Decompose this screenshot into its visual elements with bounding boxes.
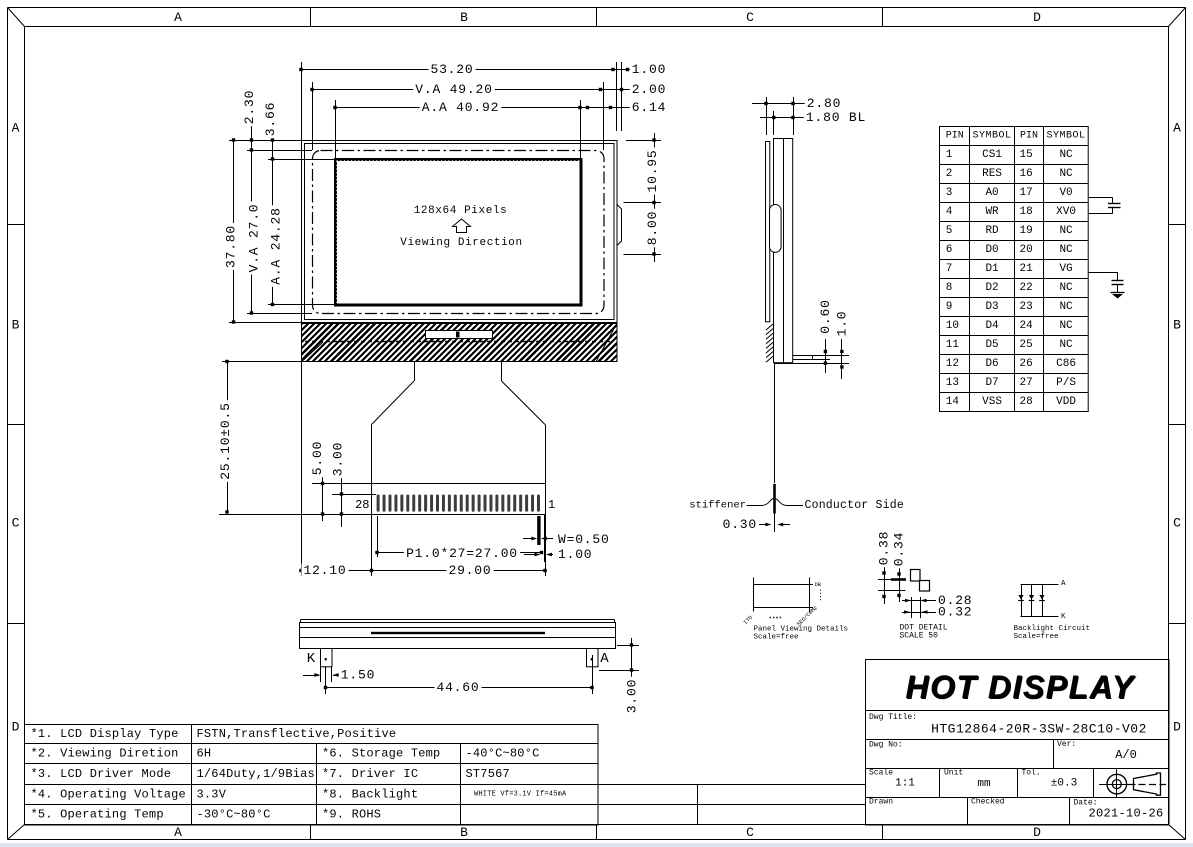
svg-text:CS1: CS1 bbox=[982, 149, 1002, 161]
svg-text:D: D bbox=[1033, 825, 1041, 840]
svg-text:1: 1 bbox=[946, 149, 953, 161]
svg-text:25.10±0.5: 25.10±0.5 bbox=[218, 402, 233, 479]
svg-text:12: 12 bbox=[946, 358, 959, 370]
svg-text:6.14: 6.14 bbox=[632, 100, 666, 115]
svg-text:NC: NC bbox=[1059, 149, 1073, 161]
svg-text:25: 25 bbox=[1020, 339, 1033, 351]
svg-text:*4. Operating Voltage: *4. Operating Voltage bbox=[31, 788, 186, 802]
svg-text:8.00: 8.00 bbox=[645, 211, 660, 245]
svg-text:Panel Viewing Details: Panel Viewing Details bbox=[754, 626, 849, 634]
svg-text:3.00: 3.00 bbox=[625, 679, 640, 713]
svg-text:1.0: 1.0 bbox=[834, 311, 849, 337]
svg-text:B: B bbox=[1173, 318, 1181, 333]
svg-text:C86: C86 bbox=[1056, 358, 1076, 370]
svg-text:0.60: 0.60 bbox=[818, 299, 833, 333]
svg-text:SEG/C0M: SEG/C0M bbox=[795, 606, 816, 627]
svg-text:HOT DISPLAY: HOT DISPLAY bbox=[905, 669, 1135, 705]
svg-text:mm: mm bbox=[977, 778, 991, 790]
svg-text:1.00: 1.00 bbox=[632, 62, 666, 77]
svg-text:Scale=free: Scale=free bbox=[1014, 633, 1059, 641]
svg-text:Backlight Circuit: Backlight Circuit bbox=[1014, 625, 1091, 633]
svg-text:0.38: 0.38 bbox=[877, 531, 892, 565]
svg-text:28: 28 bbox=[355, 498, 369, 512]
svg-text:*5. Operating Temp: *5. Operating Temp bbox=[31, 808, 164, 822]
svg-text:14: 14 bbox=[946, 396, 960, 408]
svg-text:2: 2 bbox=[946, 168, 953, 180]
svg-text:WR: WR bbox=[985, 206, 999, 218]
svg-text:27: 27 bbox=[1020, 377, 1033, 389]
svg-text:*7. Driver IC: *7. Driver IC bbox=[322, 767, 418, 781]
svg-text:128x64 Pixels: 128x64 Pixels bbox=[414, 205, 508, 217]
svg-text:Dwg Title:: Dwg Title: bbox=[869, 713, 917, 722]
svg-text:Scale: Scale bbox=[869, 769, 893, 778]
svg-text:RES: RES bbox=[982, 168, 1002, 180]
svg-text:D5: D5 bbox=[985, 339, 998, 351]
svg-text:29.00: 29.00 bbox=[448, 563, 491, 578]
svg-text:VDD: VDD bbox=[1056, 396, 1076, 408]
svg-text:10.95: 10.95 bbox=[645, 149, 660, 192]
svg-text:C: C bbox=[12, 516, 20, 531]
svg-text:PIN: PIN bbox=[1020, 131, 1038, 142]
svg-text:B: B bbox=[460, 825, 468, 840]
svg-text:NC: NC bbox=[1059, 282, 1073, 294]
svg-text:22: 22 bbox=[1020, 282, 1033, 294]
svg-text:13: 13 bbox=[946, 377, 959, 389]
svg-text:C: C bbox=[746, 10, 754, 25]
svg-text:10: 10 bbox=[946, 320, 959, 332]
svg-text:NC: NC bbox=[1059, 339, 1073, 351]
svg-text:12.10: 12.10 bbox=[303, 563, 346, 578]
svg-text:D7: D7 bbox=[985, 377, 998, 389]
svg-text:NC: NC bbox=[1059, 168, 1073, 180]
svg-text:V.A 49.20: V.A 49.20 bbox=[415, 82, 492, 97]
svg-text:20: 20 bbox=[1020, 244, 1033, 256]
svg-text:Viewing Direction: Viewing Direction bbox=[400, 237, 522, 249]
svg-text:6H: 6H bbox=[197, 747, 212, 761]
svg-text:19: 19 bbox=[1020, 225, 1033, 237]
svg-text:P/S: P/S bbox=[1056, 377, 1076, 389]
svg-text:SCALE 50: SCALE 50 bbox=[900, 632, 939, 641]
svg-text:A0: A0 bbox=[985, 187, 998, 199]
svg-text:Checked: Checked bbox=[971, 798, 1005, 807]
svg-text:W=0.50: W=0.50 bbox=[558, 532, 610, 547]
svg-text:7: 7 bbox=[946, 263, 953, 275]
svg-text:5: 5 bbox=[946, 225, 953, 237]
svg-text:D: D bbox=[1033, 10, 1041, 25]
svg-text:NC: NC bbox=[1059, 301, 1073, 313]
svg-text:24: 24 bbox=[1020, 320, 1034, 332]
svg-text:A: A bbox=[600, 651, 609, 667]
svg-text:SYMBOL: SYMBOL bbox=[973, 131, 1012, 142]
svg-text:18: 18 bbox=[1020, 206, 1033, 218]
svg-text:ITO: ITO bbox=[742, 614, 754, 626]
svg-text:1.80 BL: 1.80 BL bbox=[806, 110, 866, 125]
svg-text:D: D bbox=[1173, 720, 1181, 735]
svg-text:Unit: Unit bbox=[944, 769, 963, 778]
svg-text:V0: V0 bbox=[1059, 187, 1072, 199]
svg-text:C: C bbox=[1173, 516, 1181, 531]
svg-text:D6: D6 bbox=[985, 358, 998, 370]
svg-text:1/64Duty,1/9Bias: 1/64Duty,1/9Bias bbox=[197, 767, 315, 781]
svg-text:VSS: VSS bbox=[982, 396, 1002, 408]
svg-text:*9. ROHS: *9. ROHS bbox=[322, 808, 381, 822]
svg-text:±0.3: ±0.3 bbox=[1051, 778, 1077, 790]
svg-text:1: 1 bbox=[548, 498, 555, 512]
svg-text:PIN: PIN bbox=[946, 131, 964, 142]
svg-text:6: 6 bbox=[946, 244, 953, 256]
svg-text:RD: RD bbox=[985, 225, 999, 237]
svg-text:44.60: 44.60 bbox=[436, 680, 479, 695]
svg-text:21: 21 bbox=[1020, 263, 1034, 275]
svg-text:D0: D0 bbox=[985, 244, 998, 256]
svg-text:A: A bbox=[1173, 121, 1181, 136]
svg-text:8: 8 bbox=[946, 282, 953, 294]
svg-text:A: A bbox=[12, 121, 20, 136]
svg-text:16: 16 bbox=[1020, 168, 1033, 180]
svg-text:stiffener: stiffener bbox=[689, 500, 746, 512]
svg-text:3.3V: 3.3V bbox=[197, 788, 227, 802]
svg-text:HTG12864-20R-3SW-28C10-V02: HTG12864-20R-3SW-28C10-V02 bbox=[931, 722, 1147, 737]
svg-text:D1: D1 bbox=[985, 263, 999, 275]
svg-text:Dwg No:: Dwg No: bbox=[869, 741, 903, 750]
svg-text:DB: DB bbox=[815, 581, 822, 588]
svg-text:C: C bbox=[746, 825, 754, 840]
svg-text:B: B bbox=[460, 10, 468, 25]
svg-text:Conductor Side: Conductor Side bbox=[805, 499, 904, 512]
svg-text:FSTN,Transflective,Positive: FSTN,Transflective,Positive bbox=[197, 727, 397, 741]
svg-text:53.20: 53.20 bbox=[430, 62, 473, 77]
svg-text:0.30: 0.30 bbox=[723, 517, 757, 532]
svg-text:2.30: 2.30 bbox=[242, 90, 257, 124]
svg-text:37.80: 37.80 bbox=[224, 225, 239, 268]
svg-text:A.A 40.92: A.A 40.92 bbox=[422, 100, 499, 115]
svg-text:WHITE Vf=3.1V If=45mA: WHITE Vf=3.1V If=45mA bbox=[474, 791, 567, 799]
svg-text:K: K bbox=[1061, 613, 1066, 621]
svg-text:28: 28 bbox=[1020, 396, 1033, 408]
svg-text:P1.0*27=27.00: P1.0*27=27.00 bbox=[406, 546, 518, 561]
svg-text:*6. Storage Temp: *6. Storage Temp bbox=[322, 747, 440, 761]
svg-text:2021-10-26: 2021-10-26 bbox=[1088, 807, 1163, 821]
svg-text:26: 26 bbox=[1020, 358, 1033, 370]
svg-text:NC: NC bbox=[1059, 225, 1073, 237]
svg-text:A: A bbox=[174, 10, 182, 25]
svg-text:5.00: 5.00 bbox=[310, 441, 325, 475]
svg-text:V.A 27.0: V.A 27.0 bbox=[247, 204, 262, 273]
svg-text:A: A bbox=[1061, 580, 1066, 588]
svg-text:D: D bbox=[12, 720, 20, 735]
svg-text:Tol.: Tol. bbox=[1022, 769, 1041, 778]
svg-text:0.32: 0.32 bbox=[938, 605, 972, 620]
svg-text:4: 4 bbox=[946, 206, 953, 218]
svg-text:0.34: 0.34 bbox=[892, 532, 907, 566]
svg-text:Scale=free: Scale=free bbox=[754, 634, 799, 642]
svg-text:A.A 24.28: A.A 24.28 bbox=[269, 207, 284, 284]
svg-text:-30°C~80°C: -30°C~80°C bbox=[197, 808, 271, 822]
svg-text:3.66: 3.66 bbox=[263, 102, 278, 136]
svg-text:ST7567: ST7567 bbox=[466, 767, 510, 781]
svg-text:1.50: 1.50 bbox=[341, 668, 375, 683]
svg-text:3.00: 3.00 bbox=[331, 442, 346, 476]
svg-text:3: 3 bbox=[946, 187, 953, 199]
svg-text:17: 17 bbox=[1020, 187, 1033, 199]
svg-text:B: B bbox=[12, 318, 20, 333]
svg-text:11: 11 bbox=[946, 339, 960, 351]
svg-text:K: K bbox=[307, 651, 316, 667]
svg-text:2.00: 2.00 bbox=[632, 82, 666, 97]
svg-text:*2. Viewing Diretion: *2. Viewing Diretion bbox=[31, 747, 179, 761]
svg-text:2.80: 2.80 bbox=[807, 96, 841, 111]
svg-text:A: A bbox=[174, 825, 182, 840]
svg-text:1.00: 1.00 bbox=[558, 547, 592, 562]
svg-text:*3. LCD Driver Mode: *3. LCD Driver Mode bbox=[31, 767, 172, 781]
svg-text:D2: D2 bbox=[985, 282, 998, 294]
svg-text:VG: VG bbox=[1059, 263, 1072, 275]
svg-text:A/0: A/0 bbox=[1115, 748, 1137, 762]
svg-text:SYMBOL: SYMBOL bbox=[1047, 131, 1086, 142]
svg-text:NC: NC bbox=[1059, 244, 1073, 256]
svg-text:NC: NC bbox=[1059, 320, 1073, 332]
svg-text:Ver:: Ver: bbox=[1057, 740, 1076, 749]
svg-text:23: 23 bbox=[1020, 301, 1033, 313]
svg-text:1:1: 1:1 bbox=[895, 778, 915, 790]
svg-text:*8. Backlight: *8. Backlight bbox=[322, 788, 418, 802]
svg-text:Drawn: Drawn bbox=[869, 798, 893, 807]
svg-text:XV0: XV0 bbox=[1056, 206, 1076, 218]
svg-text:D4: D4 bbox=[985, 320, 999, 332]
svg-text:-40°C~80°C: -40°C~80°C bbox=[466, 747, 540, 761]
svg-text:D3: D3 bbox=[985, 301, 998, 313]
svg-text:15: 15 bbox=[1020, 149, 1033, 161]
svg-text:9: 9 bbox=[946, 301, 953, 313]
svg-text:*1. LCD Display Type: *1. LCD Display Type bbox=[31, 727, 179, 741]
